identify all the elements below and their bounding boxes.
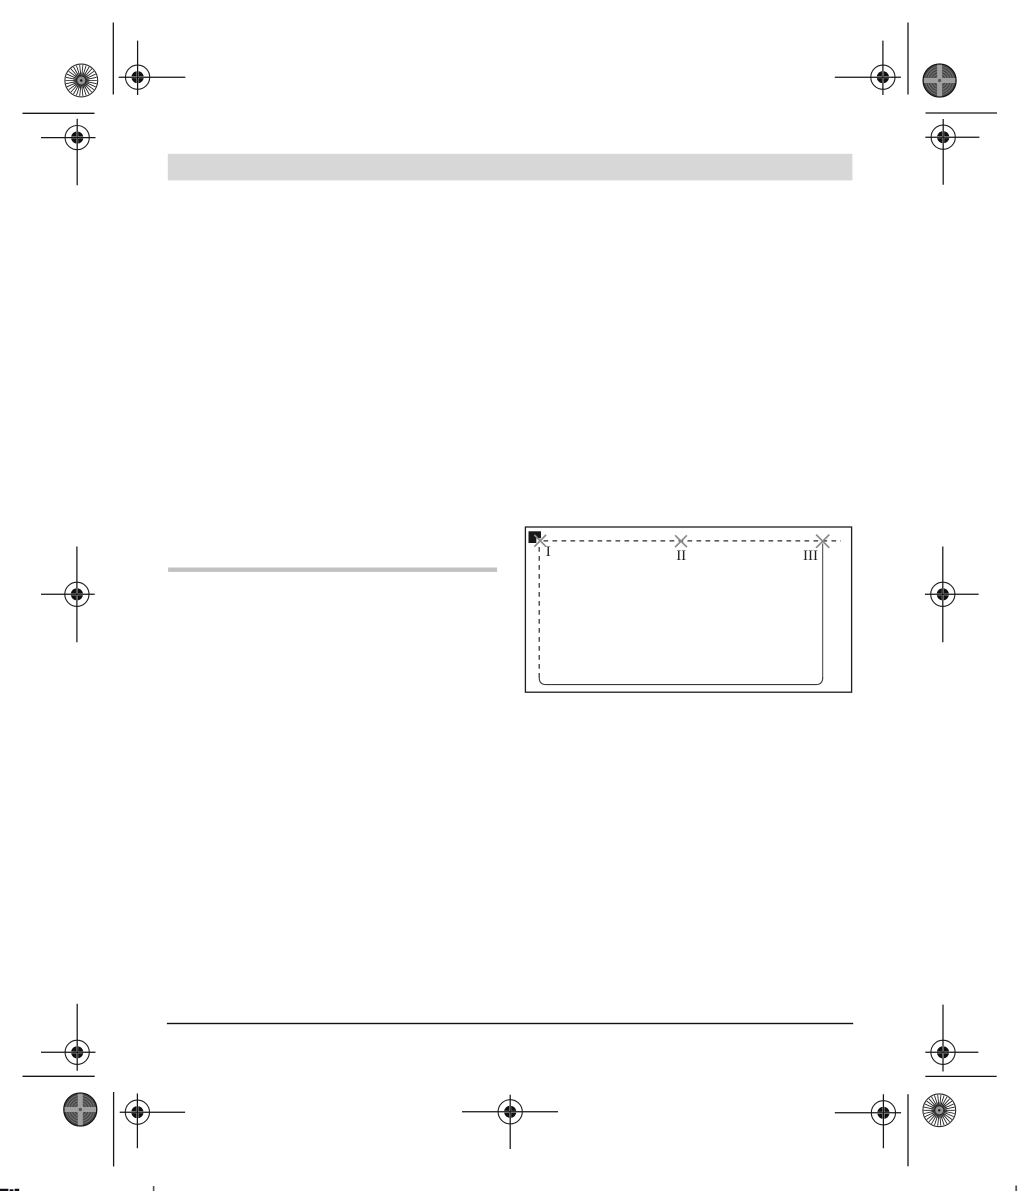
- svg-text:I: I: [546, 544, 551, 560]
- svg-text:II: II: [676, 548, 686, 564]
- svg-text:III: III: [803, 548, 818, 564]
